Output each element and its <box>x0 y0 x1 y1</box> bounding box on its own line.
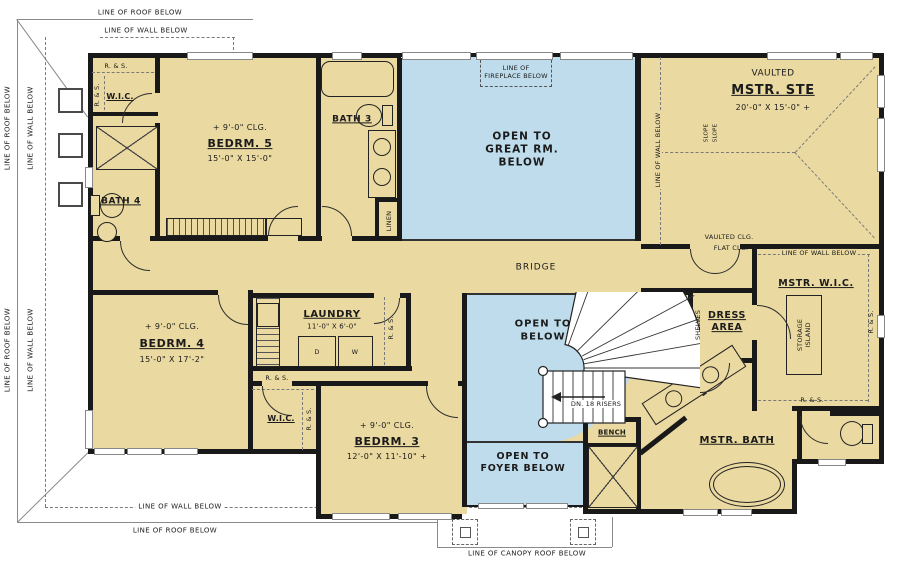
roof-below-label-left-2: LINE OF ROOF BELOW <box>4 305 13 395</box>
window <box>127 448 162 455</box>
wall <box>316 386 321 454</box>
shelves-label: SHELVES <box>694 310 702 340</box>
canopy-label: LINE OF CANOPY ROOF BELOW <box>465 550 589 559</box>
master-suite-title: MSTR. STE <box>731 83 814 99</box>
vault-ridge-line <box>660 152 795 153</box>
sink-bath4 <box>97 222 117 242</box>
window <box>164 448 198 455</box>
roof-below-label-top: LINE OF ROOF BELOW <box>95 9 185 18</box>
roof-hip-bottomleft <box>17 452 89 523</box>
door-dress-bath <box>700 363 730 393</box>
wall <box>155 58 160 93</box>
fireplace-label: LINE OF FIREPLACE BELOW <box>484 64 548 80</box>
rs-label: R. & S. <box>800 396 823 404</box>
rs-label: R. & S. <box>867 310 875 333</box>
roof-below-label-left: LINE OF ROOF BELOW <box>4 83 13 173</box>
bedroom5-title: BEDRM. 5 <box>208 137 273 151</box>
toilet-tank-master <box>862 424 873 444</box>
bedroom5-ceiling: + 9'-0" CLG. <box>213 123 267 133</box>
wall-below-label-left: LINE OF WALL BELOW <box>27 83 36 172</box>
canopy-post <box>570 519 596 545</box>
wall <box>292 381 428 386</box>
wall <box>248 381 262 386</box>
door-master-wic <box>757 305 791 339</box>
window <box>560 52 633 60</box>
canopy-line-right <box>612 517 613 547</box>
floor-plan: LINE OF ROOF BELOW LINE OF WALL BELOW LI… <box>0 0 900 573</box>
bedroom3-ceiling: + 9'-0" CLG. <box>360 421 414 431</box>
porch-post <box>58 88 83 113</box>
vaulted-clg-label: VAULTED CLG. <box>705 233 754 241</box>
window <box>85 167 93 188</box>
wall-below-label-wic: LINE OF WALL BELOW <box>780 249 858 257</box>
window <box>818 459 846 466</box>
door-bedroom4 <box>218 295 248 325</box>
flat-clg-label: FLAT CLG. <box>714 244 749 252</box>
window <box>877 315 885 338</box>
window <box>767 52 837 60</box>
open-below-label: OPEN TO BELOW <box>515 319 572 344</box>
door-toilet <box>800 416 828 444</box>
dress-area-title: DRESS AREA <box>708 310 746 334</box>
staircase <box>455 292 700 457</box>
porch-post <box>58 182 83 207</box>
wall <box>150 236 268 241</box>
wall-below-line-top <box>100 37 235 38</box>
roof-line-top <box>17 19 253 20</box>
wic3-title: W.I.C. <box>267 414 294 424</box>
wall <box>752 249 757 305</box>
wall <box>88 290 218 295</box>
wall <box>752 406 757 411</box>
builtin-bedroom5 <box>166 218 266 236</box>
door-master-right <box>715 249 740 274</box>
slope-label: SLOPE <box>713 124 720 142</box>
wall-below-label-bottom: LINE OF WALL BELOW <box>135 503 224 512</box>
window <box>187 52 253 60</box>
open-great-room-label: OPEN TO GREAT RM. BELOW <box>485 130 559 169</box>
rs-label: R. & S. <box>387 316 395 339</box>
wall <box>635 57 641 241</box>
bedroom4-ceiling: + 9'-0" CLG. <box>145 322 199 332</box>
window <box>85 410 93 449</box>
toilet-tank-bath3 <box>382 105 393 126</box>
bedroom3-title: BEDRM. 3 <box>355 435 420 449</box>
wall <box>693 288 752 293</box>
wall <box>375 198 401 202</box>
laundry-dims: 11'-0" X 6'-0" <box>307 323 357 332</box>
window <box>398 513 452 520</box>
bridge-label: BRIDGE <box>516 262 557 273</box>
door-bedroom3 <box>426 386 458 418</box>
bath3-title: BATH 3 <box>332 114 372 125</box>
rs-label: R. & S. <box>93 83 101 106</box>
window <box>721 509 752 516</box>
sink-bath3 <box>373 168 391 186</box>
tub-master <box>709 462 785 507</box>
window <box>332 52 362 60</box>
laundry-title: LAUNDRY <box>303 309 360 322</box>
slope-label: SLOPE <box>704 124 711 142</box>
wall-below-label-top: LINE OF WALL BELOW <box>101 27 190 36</box>
door-bath4 <box>120 241 150 271</box>
bedroom4-dims: 15'-0" X 17'-2" <box>140 355 205 365</box>
window <box>683 509 718 516</box>
roof-line-bottom <box>17 522 437 523</box>
window <box>94 448 125 455</box>
door-bedroom5 <box>268 206 298 236</box>
shelf-line <box>104 76 105 110</box>
window <box>877 75 885 108</box>
laundry-sink <box>257 303 279 327</box>
window <box>476 52 553 60</box>
wall-below-label-master: LINE OF WALL BELOW <box>654 111 662 189</box>
shelf-line <box>302 392 303 450</box>
wall <box>397 58 402 241</box>
canopy-post <box>452 519 478 545</box>
door-wic3 <box>262 386 292 416</box>
master-suite-tag: VAULTED <box>751 68 794 79</box>
window <box>478 503 524 509</box>
toilet-master <box>840 421 864 446</box>
rs-label: R. & S. <box>104 62 127 70</box>
great-room-rail <box>401 239 635 241</box>
canopy-line-left <box>437 517 438 547</box>
window <box>402 52 471 60</box>
open-foyer-label: OPEN TO FOYER BELOW <box>480 451 565 475</box>
window <box>877 118 885 172</box>
storage-island-label: STORAGE ISLAND <box>796 319 812 351</box>
door-bath3 <box>322 206 352 236</box>
wall <box>752 340 757 410</box>
bench-label: BENCH <box>598 429 626 438</box>
shelf-line <box>92 72 154 73</box>
window <box>840 52 873 60</box>
wall <box>406 293 411 371</box>
wall <box>830 411 882 416</box>
master-bath-title: MSTR. BATH <box>700 435 775 448</box>
wall-below-line-left <box>45 37 46 507</box>
door-master-left <box>690 249 715 274</box>
toilet-tank-bath4 <box>90 195 100 216</box>
wall <box>375 198 379 241</box>
bedroom3-dims: 12'-0" X 11'-10" + <box>347 452 427 462</box>
tub-bath3 <box>321 61 394 97</box>
rs-label: R. & S. <box>305 407 313 430</box>
master-wic-title: MSTR. W.I.C. <box>778 278 853 290</box>
shower-bath4 <box>96 126 158 170</box>
linen-label: LINEN <box>385 211 393 231</box>
window <box>526 503 568 509</box>
canopy-line-bottom <box>437 547 612 548</box>
roof-below-label-bottom: LINE OF ROOF BELOW <box>130 527 220 536</box>
washer-label: W <box>352 348 359 356</box>
roof-line-left <box>17 19 18 522</box>
dn-risers-label: DN. 18 RISERS <box>571 400 621 408</box>
tub-inner <box>713 466 781 503</box>
rs-label: R. & S. <box>265 374 288 382</box>
bedroom4-title: BEDRM. 4 <box>140 337 205 351</box>
wall-below-label-left-2: LINE OF WALL BELOW <box>27 305 36 394</box>
bath4-title: BATH 4 <box>101 196 141 207</box>
wic5-title: W.I.C. <box>106 92 133 102</box>
porch-post <box>58 133 83 158</box>
wall <box>248 290 253 454</box>
window <box>332 513 390 520</box>
master-suite-dims: 20'-0" X 15'-0" + <box>736 103 811 113</box>
wall <box>641 244 690 249</box>
bedroom5-dims: 15'-0" X 15'-0" <box>208 154 273 164</box>
dryer-label: D <box>314 348 319 356</box>
sink-bath3 <box>373 138 391 156</box>
